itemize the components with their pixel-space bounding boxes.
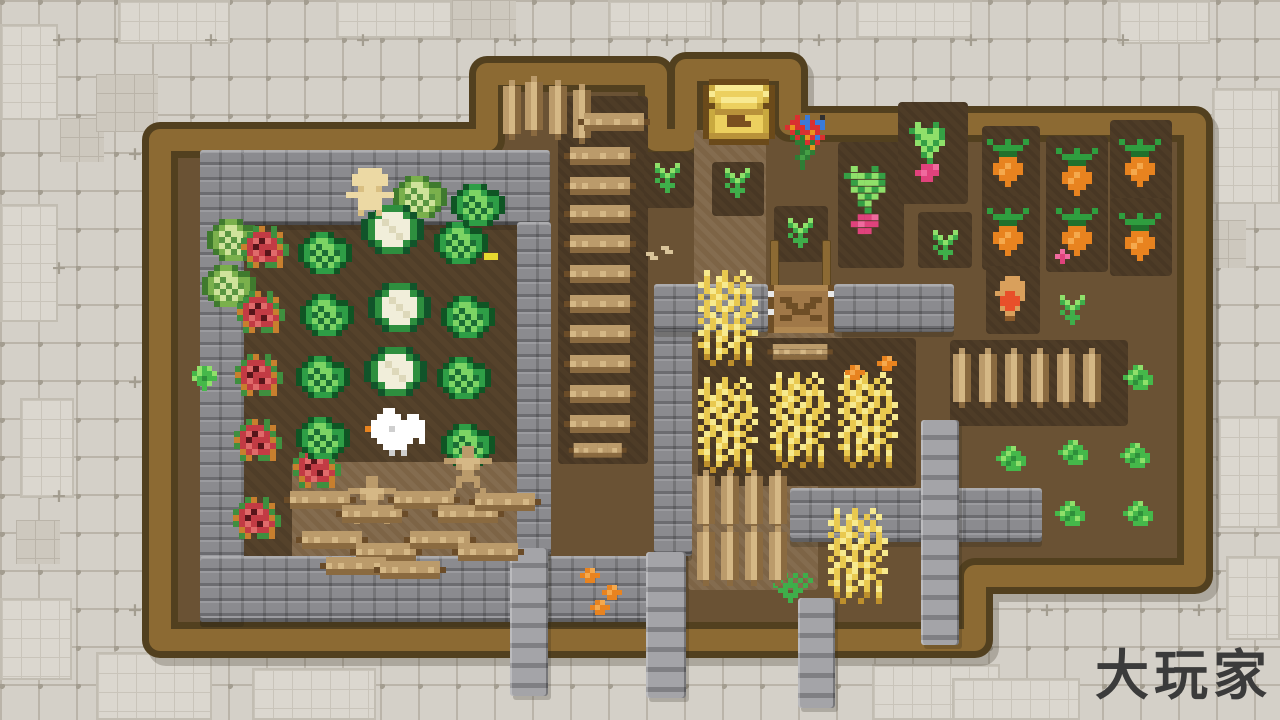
cabbage-sprite[interactable] — [445, 184, 451, 190]
item-yellow-sprite[interactable] — [477, 253, 484, 260]
stone-wall — [200, 150, 550, 225]
tilled-soil-patch — [838, 142, 904, 268]
hlog-sprite[interactable] — [558, 415, 564, 421]
tilled-soil-patch — [558, 96, 648, 464]
wheat-sprite[interactable] — [822, 508, 828, 514]
vlog-sprite[interactable] — [739, 470, 745, 476]
cauliflower-sprite[interactable] — [357, 347, 364, 354]
grass-sprite — [768, 573, 773, 578]
wheat-sprite[interactable] — [692, 270, 698, 276]
vlog-sprite[interactable] — [999, 348, 1005, 354]
vlog-sprite[interactable] — [763, 470, 769, 476]
carrot-sprite[interactable] — [981, 139, 987, 145]
rose-sprite[interactable] — [231, 291, 237, 297]
stump-sprite[interactable] — [438, 446, 444, 452]
light-cabbage-sprite[interactable] — [196, 265, 202, 271]
stone-wall — [517, 222, 551, 556]
bush-sprite[interactable] — [991, 446, 996, 451]
sprout-sprite[interactable] — [923, 230, 928, 235]
rose-sprite[interactable] — [228, 419, 234, 425]
cabbage-sprite[interactable] — [431, 357, 437, 363]
cabbage-sprite[interactable] — [428, 222, 434, 228]
hlog-sprite[interactable] — [558, 385, 564, 391]
hlog-sprite[interactable] — [314, 557, 320, 563]
hlog-sprite[interactable] — [558, 177, 564, 183]
vlog-sprite[interactable] — [1077, 348, 1083, 354]
hlog-sprite[interactable] — [398, 531, 404, 537]
gnome-sprite[interactable] — [990, 276, 995, 281]
tilled-soil-patch — [644, 152, 694, 208]
stone-wall — [790, 488, 1042, 542]
gate-post — [822, 240, 831, 288]
watermark-text: 大玩家 — [1095, 631, 1272, 710]
hlog-sprite[interactable] — [558, 325, 564, 331]
vlog-sprite[interactable] — [715, 470, 721, 476]
vlog-sprite[interactable] — [1051, 348, 1057, 354]
wheat-sprite[interactable] — [764, 372, 770, 378]
chest-sprite[interactable] — [697, 79, 703, 85]
hlog-sprite[interactable] — [278, 491, 284, 497]
stone-wall — [200, 556, 655, 622]
moss-sprite — [187, 366, 192, 371]
hlog-sprite[interactable] — [344, 543, 350, 549]
cabbage-sprite[interactable] — [292, 232, 298, 238]
tilled-soil-patch — [1110, 198, 1172, 276]
tilled-soil-patch — [774, 206, 828, 262]
sprout-sprite[interactable] — [645, 163, 650, 168]
hlog-sprite[interactable] — [463, 493, 469, 499]
gate-sprite[interactable] — [762, 285, 768, 291]
radish-sprite[interactable] — [903, 122, 909, 128]
gate-post — [770, 240, 779, 288]
vlog-sprite[interactable] — [763, 526, 769, 532]
cabbage-sprite[interactable] — [294, 294, 300, 300]
tilled-soil-patch — [982, 196, 1040, 270]
stone-pillar — [510, 548, 548, 696]
item-seed-sprite[interactable] — [642, 252, 646, 256]
carrot-sprite[interactable] — [1113, 139, 1119, 145]
rose-sprite[interactable] — [235, 226, 241, 232]
vlog-sprite[interactable] — [715, 526, 721, 532]
chicken-sprite[interactable] — [359, 408, 365, 414]
cabbage-sprite[interactable] — [290, 356, 296, 362]
sprout-sprite[interactable] — [715, 168, 720, 173]
tilled-soil-patch — [898, 102, 968, 204]
hlog-sprite[interactable] — [382, 491, 388, 497]
stone-pillar — [646, 552, 686, 698]
cauliflower-sprite[interactable] — [361, 283, 368, 290]
item-orange-sprite[interactable] — [872, 356, 877, 361]
radish-sprite[interactable] — [837, 166, 844, 173]
rose-sprite[interactable] — [229, 354, 235, 360]
bush-sprite[interactable] — [1050, 501, 1055, 506]
stone-wall — [834, 284, 954, 332]
cabbage-sprite[interactable] — [435, 424, 441, 430]
stone-pillar — [921, 420, 959, 645]
hlog-sprite[interactable] — [290, 531, 296, 537]
carrot-sprite[interactable] — [1113, 213, 1119, 219]
hlog-sprite[interactable] — [446, 543, 452, 549]
hlog-sprite[interactable] — [558, 265, 564, 271]
tilled-soil-patch — [918, 212, 972, 268]
item-seed-sprite[interactable] — [657, 246, 661, 250]
item-orange-sprite[interactable] — [575, 568, 580, 573]
hlog-sprite[interactable] — [426, 505, 432, 511]
tilled-soil-patch — [712, 162, 764, 216]
vlog-sprite[interactable] — [519, 76, 525, 82]
cauliflower-sprite[interactable] — [354, 205, 361, 212]
tilled-soil-patch — [1110, 120, 1172, 206]
tilled-soil-patch — [698, 338, 916, 486]
sprout-sprite[interactable] — [778, 218, 783, 223]
rose-sprite[interactable] — [287, 446, 293, 452]
stone-pillar — [798, 598, 835, 708]
wheat-sprite[interactable] — [692, 377, 698, 383]
vlog-sprite[interactable] — [973, 348, 979, 354]
item-orange-sprite[interactable] — [597, 585, 602, 590]
hlog-sprite[interactable] — [368, 561, 374, 567]
flowers-sprite[interactable] — [780, 115, 785, 120]
bush-sprite[interactable] — [1115, 443, 1120, 448]
player-sprite[interactable] — [340, 168, 346, 174]
bush-sprite[interactable] — [1118, 501, 1123, 506]
bush-sprite[interactable] — [1118, 365, 1123, 370]
vlog-sprite[interactable] — [947, 348, 953, 354]
bush-sprite[interactable] — [1053, 440, 1058, 445]
hlog-sprite[interactable] — [558, 235, 564, 241]
cabbage-sprite[interactable] — [290, 417, 296, 423]
carrot-sprite[interactable] — [1050, 208, 1056, 214]
item-radish-sprite[interactable] — [1050, 249, 1055, 254]
game-stage: ++++++++++++++++++++++++++++++++++++++++… — [0, 0, 1280, 720]
wheat-sprite[interactable] — [832, 372, 838, 378]
light-cabbage-sprite[interactable] — [201, 219, 207, 225]
vlog-sprite[interactable] — [543, 80, 549, 86]
hlog-sprite[interactable] — [564, 443, 569, 448]
stump-sprite[interactable] — [342, 476, 348, 482]
stone-wall — [654, 284, 768, 332]
hlog-sprite[interactable] — [572, 113, 578, 119]
carrot-sprite[interactable] — [1050, 148, 1056, 154]
vlog-sprite[interactable] — [691, 526, 697, 532]
vlog-sprite[interactable] — [739, 526, 745, 532]
vlog-sprite[interactable] — [567, 84, 573, 90]
item-orange-sprite[interactable] — [585, 600, 590, 605]
hlog-sprite[interactable] — [558, 205, 564, 211]
vlog-sprite[interactable] — [497, 80, 503, 86]
light-cabbage-sprite[interactable] — [387, 176, 393, 182]
sprout-sprite[interactable] — [1050, 295, 1055, 300]
vlog-sprite[interactable] — [1025, 348, 1031, 354]
cabbage-sprite[interactable] — [435, 296, 441, 302]
vlog-sprite[interactable] — [691, 470, 697, 476]
hlog-sprite[interactable] — [558, 355, 564, 361]
carrot-sprite[interactable] — [981, 208, 987, 214]
hlog-sprite[interactable] — [558, 147, 564, 153]
hlog-sprite[interactable] — [762, 344, 767, 349]
hlog-sprite[interactable] — [558, 295, 564, 301]
rose-sprite[interactable] — [227, 497, 233, 503]
path-patch — [292, 462, 518, 566]
hlog-sprite[interactable] — [330, 505, 336, 511]
item-orange-sprite[interactable] — [840, 365, 845, 370]
